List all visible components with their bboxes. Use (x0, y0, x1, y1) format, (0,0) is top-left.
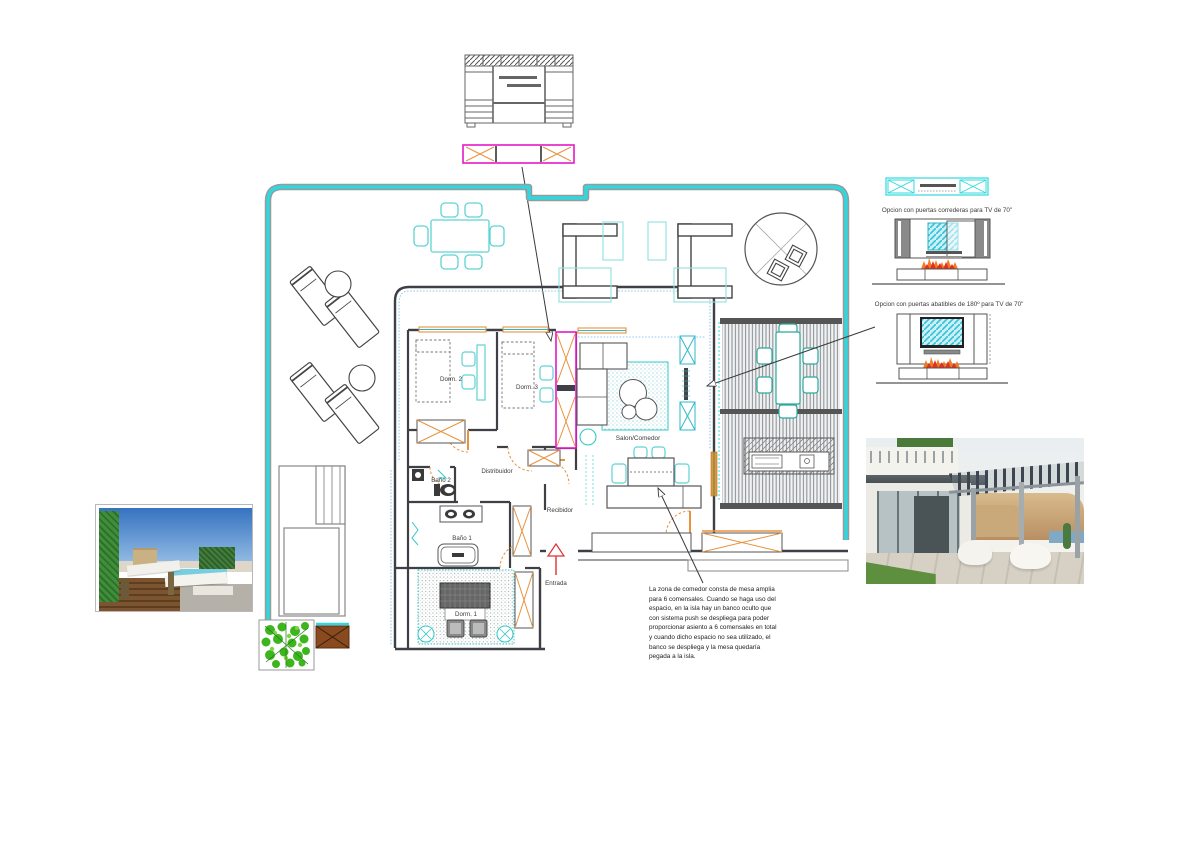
bathrooms-and-hall: Distribuidor Baño 2 Baño 1 Recibidor (412, 450, 573, 566)
planter-green (259, 620, 314, 670)
fireplace-flames-icon (921, 258, 958, 269)
photo-lounger (193, 586, 234, 594)
wardrobe-elevation-detail (465, 55, 573, 127)
side-table (580, 429, 596, 445)
entrance-arrow-icon (548, 544, 564, 556)
photo-lantern (121, 580, 129, 599)
photo-green-wall (99, 511, 119, 602)
photo-beanbag (1010, 543, 1051, 569)
room-dorm3: Dorm. 3 (502, 342, 553, 408)
room-label-salon: Salon/Comedor (616, 435, 661, 442)
planter-box (316, 624, 349, 648)
tv-plan-detail (886, 178, 988, 195)
room-label-dorm2: Dorm. 2 (440, 376, 463, 383)
entrance-marker: Entrada (545, 544, 567, 587)
room-label-bano1: Baño 1 (452, 535, 472, 542)
outdoor-deck (719, 318, 842, 509)
terrace-photo-image (99, 508, 253, 612)
tv-option-2-label: Opcion con puertas abatibles de 180º par… (875, 301, 1024, 308)
bbq-island (744, 438, 834, 474)
tv-elevation-folding (876, 314, 1008, 383)
terrace-sofas (559, 222, 732, 302)
photo-cactus (1063, 523, 1071, 549)
photo-glass-interior (914, 496, 949, 553)
room-label-recibidor: Recibidor (547, 507, 573, 514)
room-salon: Salon/Comedor (577, 336, 705, 445)
room-label-dorm1: Dorm. 1 (455, 611, 478, 618)
tv-wall-unit (680, 336, 695, 430)
pergola-photo (866, 438, 1084, 584)
bedroom-wardrobe-column (556, 332, 576, 448)
kitchen-cabinets (592, 533, 691, 552)
kitchen-island (607, 486, 701, 508)
photo-pergola-post (1075, 476, 1080, 558)
toilet (434, 484, 440, 496)
terrace-photo (95, 504, 253, 612)
photo-lantern (168, 572, 174, 595)
photo-green-wall (199, 547, 235, 569)
tv-option-1-label: Opcion con puertas correderas para TV de… (882, 207, 1012, 214)
room-label-bano2: Baño 2 (431, 477, 451, 484)
room-label-dorm3: Dorm. 3 (516, 384, 539, 391)
room-dorm2: Dorm. 2 (416, 340, 485, 443)
photo-railing (870, 451, 953, 463)
tv-screen (922, 319, 962, 345)
dining-note-text: La zona de comedor consta de mesa amplia… (649, 585, 777, 662)
plan-drawing: Dorm. 2 Dorm. 3 (0, 0, 1200, 848)
architectural-plan-sheet: Dorm. 2 Dorm. 3 (0, 0, 1200, 848)
photo-beanbag (958, 540, 993, 565)
room-label-entrada: Entrada (545, 580, 567, 587)
wardrobe-plan-detail (463, 145, 574, 163)
room-label-distribuidor: Distribuidor (481, 468, 512, 475)
tv-elevation-sliding (872, 219, 1005, 284)
pool-area (279, 466, 345, 616)
sofa (580, 343, 627, 369)
room-dorm1: Dorm. 1 (418, 570, 533, 644)
sun-loungers (290, 266, 380, 444)
round-daybed (745, 213, 817, 285)
terrace-dining-set (414, 203, 504, 269)
